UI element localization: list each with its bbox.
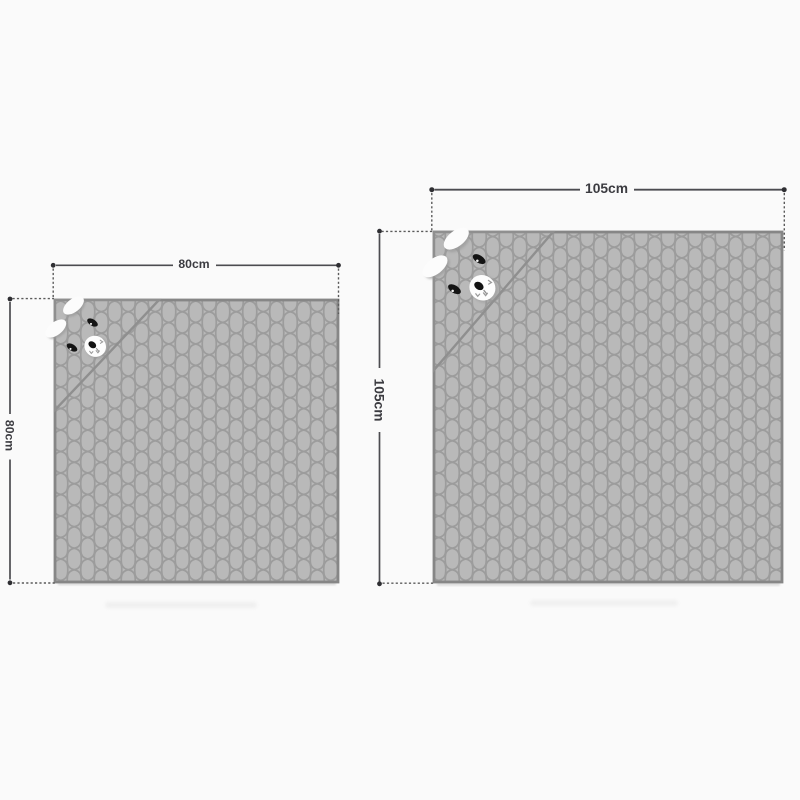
svg-text:105cm: 105cm [585,181,628,196]
svg-text:105cm: 105cm [372,379,387,422]
svg-text:80cm: 80cm [178,257,209,271]
svg-text:80cm: 80cm [3,420,17,451]
